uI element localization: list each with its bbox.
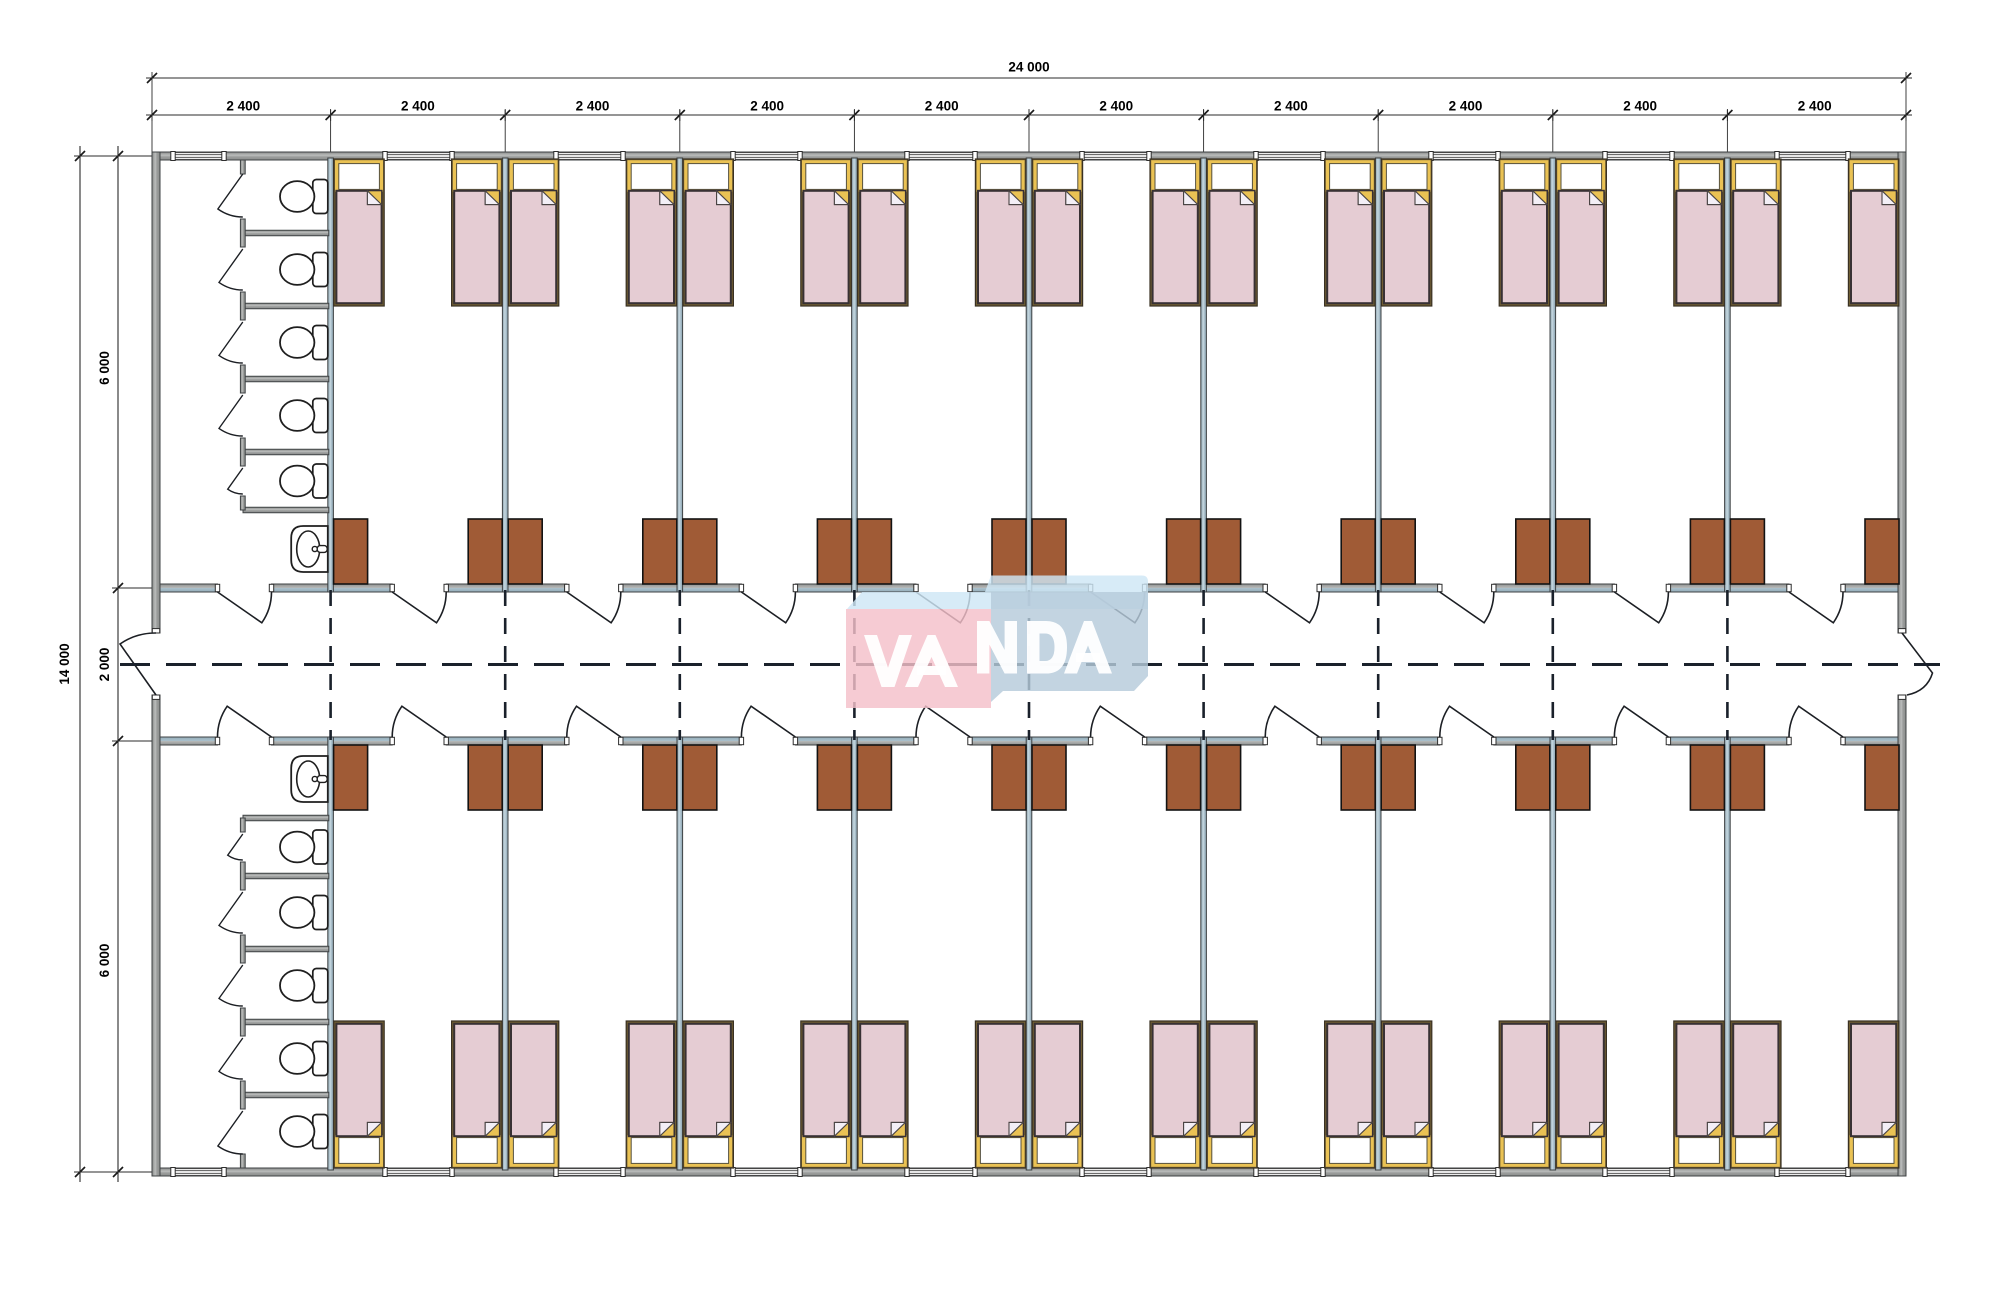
svg-text:6 000: 6 000 xyxy=(97,351,112,385)
svg-text:24 000: 24 000 xyxy=(1008,60,1049,75)
svg-text:6 000: 6 000 xyxy=(97,944,112,978)
svg-text:2 000: 2 000 xyxy=(97,648,112,682)
svg-text:2 400: 2 400 xyxy=(401,99,435,114)
svg-text:14 000: 14 000 xyxy=(57,643,72,684)
svg-text:2 400: 2 400 xyxy=(925,99,959,114)
svg-text:2 400: 2 400 xyxy=(1449,99,1483,114)
svg-text:2 400: 2 400 xyxy=(226,99,260,114)
svg-text:2 400: 2 400 xyxy=(576,99,610,114)
svg-text:2 400: 2 400 xyxy=(1623,99,1657,114)
svg-text:2 400: 2 400 xyxy=(1099,99,1133,114)
svg-text:2 400: 2 400 xyxy=(750,99,784,114)
svg-text:2 400: 2 400 xyxy=(1274,99,1308,114)
svg-text:2 400: 2 400 xyxy=(1798,99,1832,114)
